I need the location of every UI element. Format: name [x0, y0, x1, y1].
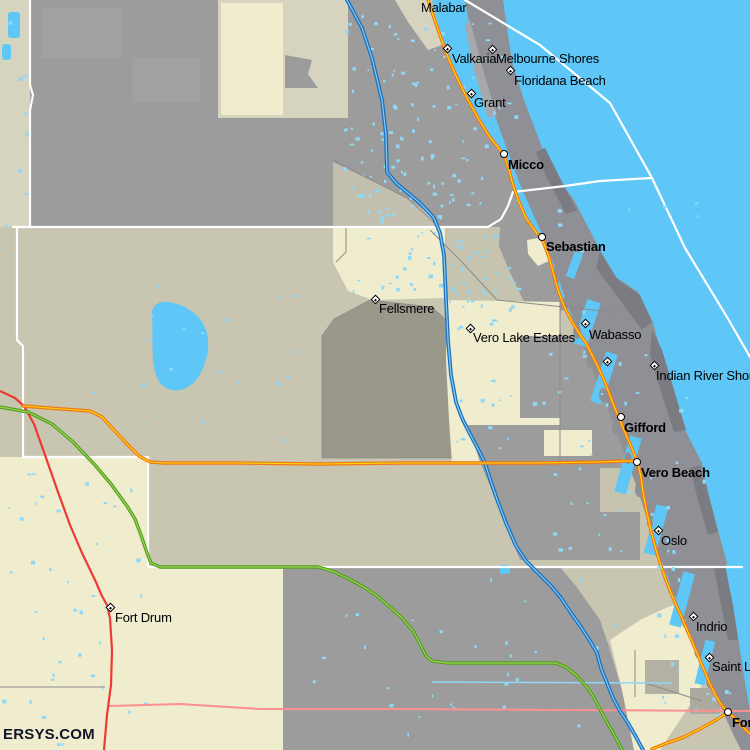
canal-line [432, 682, 672, 683]
map-canvas[interactable]: MalabarValkariaMelbourne ShoresFloridana… [0, 0, 750, 750]
lower-gray-area [283, 567, 634, 750]
watermark-text: ERSYS.COM [3, 726, 95, 743]
map-graphic [0, 0, 750, 750]
